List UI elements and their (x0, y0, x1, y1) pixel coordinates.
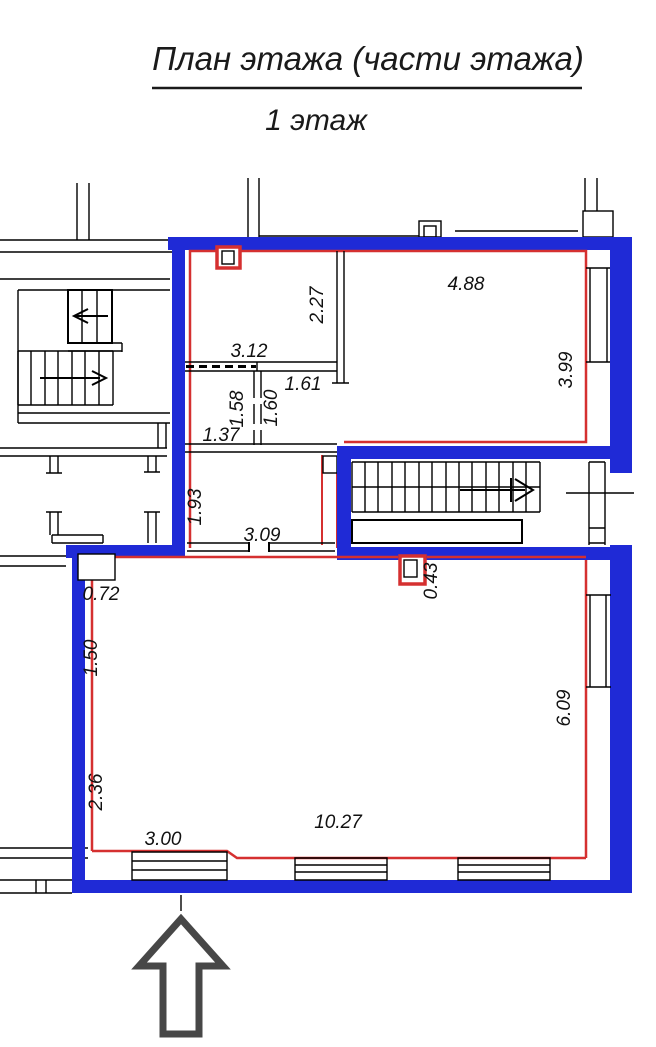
dim-3-09: 3.09 (244, 525, 281, 546)
dim-2-27: 2.27 (307, 285, 328, 324)
dim-10-27: 10.27 (314, 812, 363, 833)
dim-1-93: 1.93 (185, 488, 206, 525)
dim-1-50: 1.50 (81, 639, 102, 676)
stair-wall-right-stub (610, 446, 632, 473)
dim-3-99: 3.99 (556, 351, 577, 388)
left-section-wall-4 (0, 556, 66, 566)
dim-3-00: 3.00 (145, 829, 182, 850)
upper-wall-right (610, 237, 632, 463)
dim-2-36: 2.36 (86, 773, 107, 811)
stair-arrow-right-icon (40, 371, 106, 385)
wall-stub-top-left (77, 183, 89, 240)
lower-wall-bottom (72, 880, 632, 893)
left-l-wall (52, 535, 103, 543)
bottom-window-2 (295, 858, 387, 880)
stair-arrow-left-icon (74, 309, 108, 323)
interior-wall-horizontal (185, 362, 337, 371)
left-section-wall-1 (0, 279, 170, 290)
floor-subtitle: 1 этаж (265, 104, 368, 137)
stair-wall-left (337, 446, 351, 560)
vent-shaft-top (419, 221, 441, 237)
left-inner-wall-openings (144, 456, 160, 543)
left-section-wall-2 (18, 290, 170, 448)
page-title: План этажа (части этажа) (152, 40, 584, 77)
dimension-labels: 4.88 2.27 3.99 3.12 1.61 1.58 1.60 1.37 … (81, 274, 577, 850)
dim-4-88: 4.88 (448, 274, 485, 295)
bottom-window-3 (458, 858, 550, 880)
stair-landing (352, 520, 522, 543)
entrance-door-frame (589, 462, 605, 545)
interior-wall-vertical (332, 251, 349, 383)
dim-0-72: 0.72 (83, 584, 120, 605)
interior-wall-small-vertical (254, 371, 261, 445)
left-outer-wall-openings (46, 456, 62, 535)
north-arrow (139, 919, 223, 1034)
entrance (566, 462, 634, 545)
column-corridor (323, 456, 337, 473)
left-section-wall-3 (0, 448, 167, 456)
title-block: План этажа (части этажа) 1 этаж (152, 40, 584, 137)
floor-plan-page: План этажа (части этажа) 1 этаж (0, 0, 656, 1047)
dim-6-09: 6.09 (554, 689, 575, 726)
lower-top-opening (78, 554, 115, 580)
column-top-left (217, 247, 240, 268)
dim-1-37: 1.37 (203, 425, 241, 446)
stairwell (337, 446, 632, 560)
upper-window-mask (588, 266, 609, 364)
vent-box-top-right (583, 211, 613, 237)
dim-0-43: 0.43 (421, 562, 442, 599)
wall-stub-top-mid (248, 178, 259, 238)
wall-stub-top-right (585, 178, 597, 211)
floor-plan-canvas: План этажа (части этажа) 1 этаж (0, 0, 656, 1047)
upper-wall-bottom (337, 446, 632, 459)
dim-3-12: 3.12 (231, 341, 268, 362)
dim-1-58: 1.58 (227, 390, 248, 427)
wall-top-left-horizontal (0, 240, 172, 252)
dim-1-61: 1.61 (285, 374, 322, 395)
upper-wall-left (172, 237, 185, 558)
north-arrow-icon (139, 919, 223, 1034)
lower-wall-right (610, 545, 632, 893)
stair-arrow-main-icon (460, 478, 533, 502)
dim-1-60: 1.60 (261, 389, 282, 426)
bottom-window-1 (132, 852, 227, 880)
